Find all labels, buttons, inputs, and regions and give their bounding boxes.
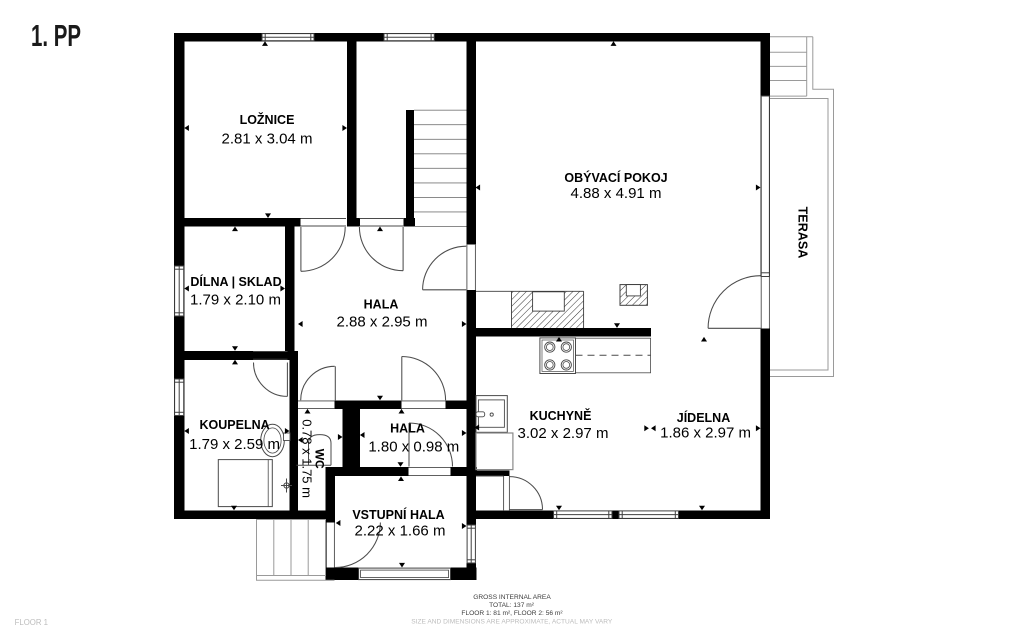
svg-text:GROSS INTERNAL AREA: GROSS INTERNAL AREA [473,594,551,601]
svg-text:2.22 x 1.66 m: 2.22 x 1.66 m [355,523,446,540]
svg-text:HALA: HALA [390,422,425,436]
svg-text:VSTUPNÍ HALA: VSTUPNÍ HALA [352,507,444,522]
svg-text:FLOOR 1: 81 m², FLOOR 2: 56 m²: FLOOR 1: 81 m², FLOOR 2: 56 m² [461,610,563,617]
svg-text:LOŽNICE: LOŽNICE [240,112,295,127]
svg-text:1.80 x 0.98 m: 1.80 x 0.98 m [368,438,459,455]
svg-text:OBÝVACÍ POKOJ: OBÝVACÍ POKOJ [564,170,667,185]
svg-text:1.79 x 2.10 m: 1.79 x 2.10 m [190,292,281,309]
svg-text:KUCHYNĚ: KUCHYNĚ [530,408,592,423]
svg-text:HALA: HALA [364,298,399,312]
svg-text:TERASA: TERASA [796,207,810,259]
svg-text:1.79 x 2.59 m: 1.79 x 2.59 m [189,436,280,453]
svg-text:2.88 x 2.95 m: 2.88 x 2.95 m [337,314,428,331]
svg-text:1.86 x 2.97 m: 1.86 x 2.97 m [660,424,751,441]
svg-text:4.88 x 4.91 m: 4.88 x 4.91 m [571,185,662,202]
svg-text:TOTAL: 137 m²: TOTAL: 137 m² [489,602,535,609]
svg-text:SIZE AND DIMENSIONS ARE APPROX: SIZE AND DIMENSIONS ARE APPROXIMATE, ACT… [411,618,613,625]
svg-text:KOUPELNA: KOUPELNA [200,418,270,432]
svg-text:1. PP: 1. PP [31,18,81,53]
svg-text:2.81 x 3.04 m: 2.81 x 3.04 m [222,131,313,148]
svg-text:3.02 x 2.97 m: 3.02 x 2.97 m [518,425,609,442]
svg-text:0.78 x 1.75 m: 0.78 x 1.75 m [300,419,315,498]
svg-text:JÍDELNA: JÍDELNA [677,410,730,425]
svg-text:DÍLNA | SKLAD: DÍLNA | SKLAD [190,274,281,289]
svg-text:FLOOR 1: FLOOR 1 [15,618,48,627]
